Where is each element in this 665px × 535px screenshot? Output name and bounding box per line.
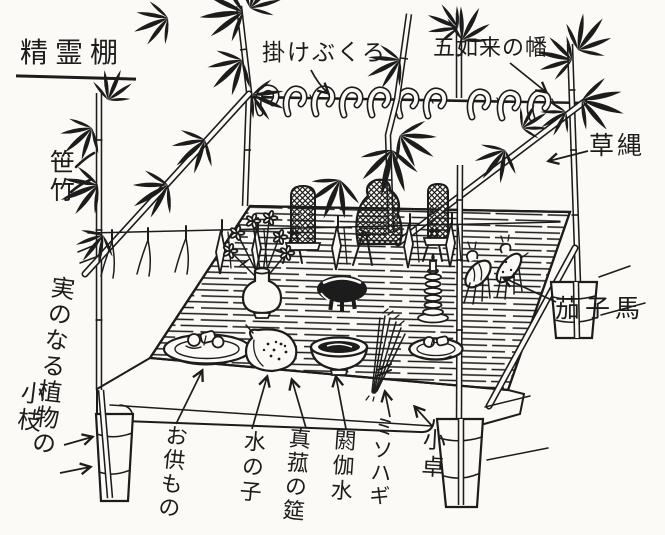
leader-offerings (176, 371, 202, 424)
hanging-branch (175, 226, 188, 274)
leader-banner (510, 63, 546, 92)
leader-misohagi (385, 392, 390, 417)
label-straw-rope: 草縄 (589, 133, 645, 159)
label-aka-water: 閼伽水 (327, 428, 355, 504)
label-hanging-bag: 掛けぶくろ (262, 41, 387, 65)
leader-small-table (415, 407, 433, 427)
bamboo-pole-center (397, 14, 409, 99)
bamboo-pole-front-right-lower (456, 165, 463, 419)
leader-makomo (292, 380, 306, 428)
label-eggplant-horse: 茄子馬 (555, 296, 645, 322)
buddha-figure (356, 180, 401, 244)
leader-aka (336, 377, 346, 429)
leader-straw-rope (549, 151, 588, 161)
memorial-tablet-left (286, 186, 320, 250)
hanging-branch (137, 228, 150, 276)
table-leg-front (437, 396, 548, 507)
label-five-nyorai-banner: 五如来の幡 (433, 37, 548, 60)
leader-sasa-1 (76, 153, 94, 167)
page-title: 精霊棚 (20, 38, 125, 67)
label-fruiting-branch-2: 小枝 (12, 379, 44, 436)
label-small-table: 小卓 (417, 427, 444, 482)
label-sasa-bamboo: 笹竹 (47, 149, 73, 205)
hanging-bags (258, 88, 548, 118)
illustration-canvas: 精霊棚 掛けぶくろ 五如来の幡 笹竹 草縄 実のなる植物の 小枝 お供もの 水の… (0, 0, 665, 535)
leader-mizunoko (252, 377, 267, 429)
